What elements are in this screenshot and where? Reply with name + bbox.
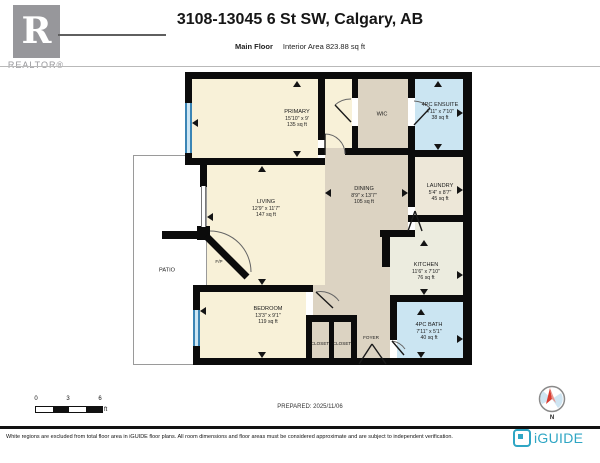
iguide-logo: iGUIDE (513, 429, 583, 447)
scale-unit-label: ft (104, 407, 107, 413)
bedroom-window (193, 310, 200, 346)
compass-north-label: N (534, 415, 570, 421)
scale-segment (36, 407, 53, 412)
disclaimer-text: White regions are excluded from total fl… (6, 434, 526, 440)
wall (352, 72, 358, 98)
room-label-laundry: LAUNDRY 5'4" x 8'7" 45 sq ft (427, 183, 454, 203)
wall (185, 72, 192, 103)
wall (193, 346, 200, 365)
realtor-logo-label: REALTOR® (4, 60, 68, 70)
scale-segment (69, 407, 86, 412)
wall (329, 322, 334, 358)
scale-segment (53, 407, 70, 412)
wall (193, 285, 313, 292)
wall (390, 295, 472, 302)
wall (408, 157, 415, 207)
wall (306, 315, 357, 322)
compass-icon (534, 384, 570, 414)
scale-bar (35, 406, 103, 413)
scale-tick-0: 0 (31, 396, 41, 402)
wall (408, 72, 415, 98)
room-label-wic: WIC (377, 112, 388, 119)
scale-tick-6: 6 (95, 396, 105, 402)
wall (185, 72, 472, 79)
foyer-area (357, 295, 390, 358)
wall (193, 285, 200, 310)
room-label-closet2: CLOSET (333, 341, 351, 347)
prepared-date: PREPARED: 2025/11/06 (230, 404, 390, 410)
room-label-kitchen: KITCHEN 11'6" x 7'10" 76 sq ft (412, 262, 440, 282)
floor-subtitle: Main FloorInterior Area 823.88 sq ft (0, 42, 600, 51)
wall (390, 302, 397, 340)
wall (351, 315, 357, 358)
wall (185, 158, 325, 165)
room-label-fireplace: F/P (215, 259, 222, 265)
iguide-icon (513, 429, 531, 447)
realtor-logo-line (58, 34, 166, 36)
living-room-area (207, 165, 325, 285)
wall (408, 126, 415, 150)
iguide-wordmark: iGUIDE (534, 430, 583, 446)
wall (408, 150, 472, 157)
floor-label: Main Floor (235, 42, 273, 51)
wall (318, 148, 325, 155)
wall (380, 230, 415, 237)
wall (352, 126, 358, 148)
room-label-bath: 4PC BATH 7'11" x 5'1" 40 sq ft (416, 322, 443, 342)
wall (193, 358, 472, 365)
scale-segment (86, 407, 103, 412)
wall (306, 315, 312, 358)
header-separator (0, 66, 600, 67)
closet2-area (334, 322, 351, 358)
kitchen-upper-area (415, 222, 463, 237)
scale-tick-3: 3 (63, 396, 73, 402)
room-label-ensuite: 4PC ENSUITE 4'11" x 7'10" 38 sq ft (422, 102, 459, 122)
room-label-dining: DINING 8'9" x 13'7" 105 sq ft (351, 186, 377, 206)
floorplan-page: R REALTOR® 3108-13045 6 St SW, Calgary, … (0, 0, 600, 463)
primary-window (185, 103, 192, 153)
room-label-foyer: FOYER (363, 335, 379, 341)
wall (345, 148, 415, 155)
room-label-primary: PRIMARY 15'10" x 9' 135 sq ft (284, 109, 309, 129)
closet1-area (312, 322, 329, 358)
patio-glass-door (201, 186, 206, 227)
page-title: 3108-13045 6 St SW, Calgary, AB (0, 11, 600, 29)
hall-area (325, 79, 352, 148)
room-label-patio: PATIO (159, 268, 175, 275)
patio-wall-stub (162, 231, 207, 239)
wall (200, 165, 207, 187)
room-label-living: LIVING 12'9" x 11'7" 147 sq ft (252, 199, 280, 219)
wall (408, 215, 472, 222)
wall (318, 72, 325, 140)
wall (382, 237, 390, 267)
footer-rule (0, 426, 600, 429)
interior-area-label: Interior Area 823.88 sq ft (283, 42, 365, 51)
room-label-bedroom: BEDROOM 13'3" x 9'1" 119 sq ft (254, 306, 283, 326)
room-label-closet1: CLOSET (311, 341, 329, 347)
